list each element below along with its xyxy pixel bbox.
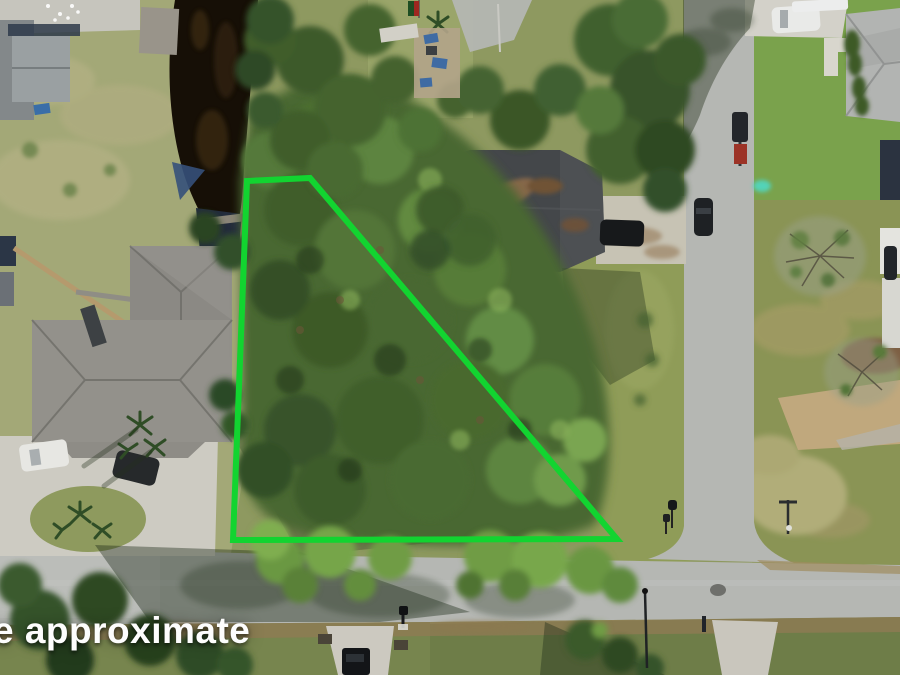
black-truck-bottom [342,648,370,675]
teal-object [753,180,771,192]
aerial-photo: e approximate [0,0,900,675]
black-car-road [694,198,713,236]
aerial-photo-svg [0,0,900,675]
watermark-text: e approximate [0,610,250,652]
black-car-driveway [600,219,645,247]
dock [139,7,179,55]
right-edge-structures [880,140,900,348]
bottom-driveway-right [712,620,778,675]
post [702,616,706,632]
truck-with-trailer [732,112,748,166]
flag [408,0,419,18]
top-right-house [844,8,900,122]
dark-suv [884,246,897,280]
